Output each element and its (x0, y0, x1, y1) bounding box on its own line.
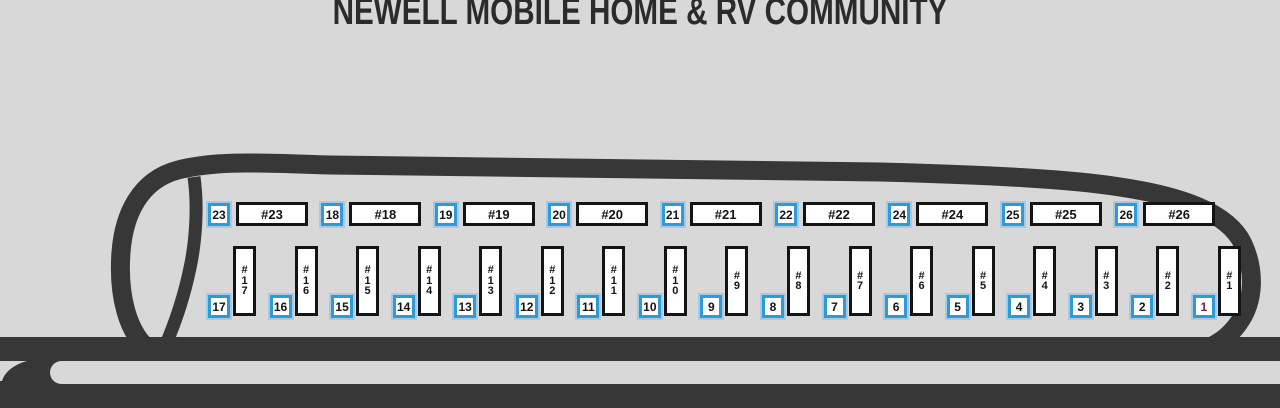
lot-link-11[interactable]: 11 (577, 295, 599, 318)
lot-24: #24 (916, 202, 988, 226)
lot-link-1[interactable]: 1 (1193, 295, 1215, 318)
lot-1: # 1 (1218, 246, 1241, 316)
lot-link-18[interactable]: 18 (321, 203, 343, 226)
lot-link-21[interactable]: 21 (662, 203, 684, 226)
lot-6: # 6 (910, 246, 933, 316)
lot-link-16[interactable]: 16 (270, 295, 292, 318)
lot-12: # 1 2 (541, 246, 564, 316)
lot-link-26[interactable]: 26 (1115, 203, 1137, 226)
lot-14: # 1 4 (418, 246, 441, 316)
lot-5: # 5 (972, 246, 995, 316)
lot-link-4[interactable]: 4 (1008, 295, 1030, 318)
lot-20: #20 (576, 202, 648, 226)
lot-19: #19 (463, 202, 535, 226)
lot-9: # 9 (725, 246, 748, 316)
lot-link-17[interactable]: 17 (208, 295, 230, 318)
lot-17: # 1 7 (233, 246, 256, 316)
lot-link-20[interactable]: 20 (548, 203, 570, 226)
lot-4: # 4 (1033, 246, 1056, 316)
lot-link-19[interactable]: 19 (435, 203, 457, 226)
lot-link-10[interactable]: 10 (639, 295, 661, 318)
lot-link-25[interactable]: 25 (1002, 203, 1024, 226)
road-gap-strip (50, 361, 1280, 384)
lot-link-13[interactable]: 13 (454, 295, 476, 318)
lot-link-9[interactable]: 9 (700, 295, 722, 318)
lot-7: # 7 (849, 246, 872, 316)
lot-link-15[interactable]: 15 (331, 295, 353, 318)
lot-link-8[interactable]: 8 (762, 295, 784, 318)
lot-link-12[interactable]: 12 (516, 295, 538, 318)
lot-link-24[interactable]: 24 (888, 203, 910, 226)
lot-23: #23 (236, 202, 308, 226)
lot-26: #26 (1143, 202, 1215, 226)
lot-25: #25 (1030, 202, 1102, 226)
lot-16: # 1 6 (295, 246, 318, 316)
lot-link-3[interactable]: 3 (1070, 295, 1092, 318)
lot-15: # 1 5 (356, 246, 379, 316)
community-site-map: NEWELL MOBILE HOME & RV COMMUNITY 23#231… (0, 0, 1280, 408)
lot-link-23[interactable]: 23 (208, 203, 230, 226)
lot-13: # 1 3 (479, 246, 502, 316)
lot-2: # 2 (1156, 246, 1179, 316)
lot-22: #22 (803, 202, 875, 226)
lot-link-22[interactable]: 22 (775, 203, 797, 226)
road-turnaround-inner-edge (166, 177, 196, 344)
lot-link-6[interactable]: 6 (885, 295, 907, 318)
lot-10: # 1 0 (664, 246, 687, 316)
lot-link-7[interactable]: 7 (824, 295, 846, 318)
lot-link-5[interactable]: 5 (947, 295, 969, 318)
lot-8: # 8 (787, 246, 810, 316)
lot-21: #21 (690, 202, 762, 226)
lot-link-14[interactable]: 14 (393, 295, 415, 318)
lot-18: #18 (349, 202, 421, 226)
lot-3: # 3 (1095, 246, 1118, 316)
lot-11: # 1 1 (602, 246, 625, 316)
lot-link-2[interactable]: 2 (1131, 295, 1153, 318)
